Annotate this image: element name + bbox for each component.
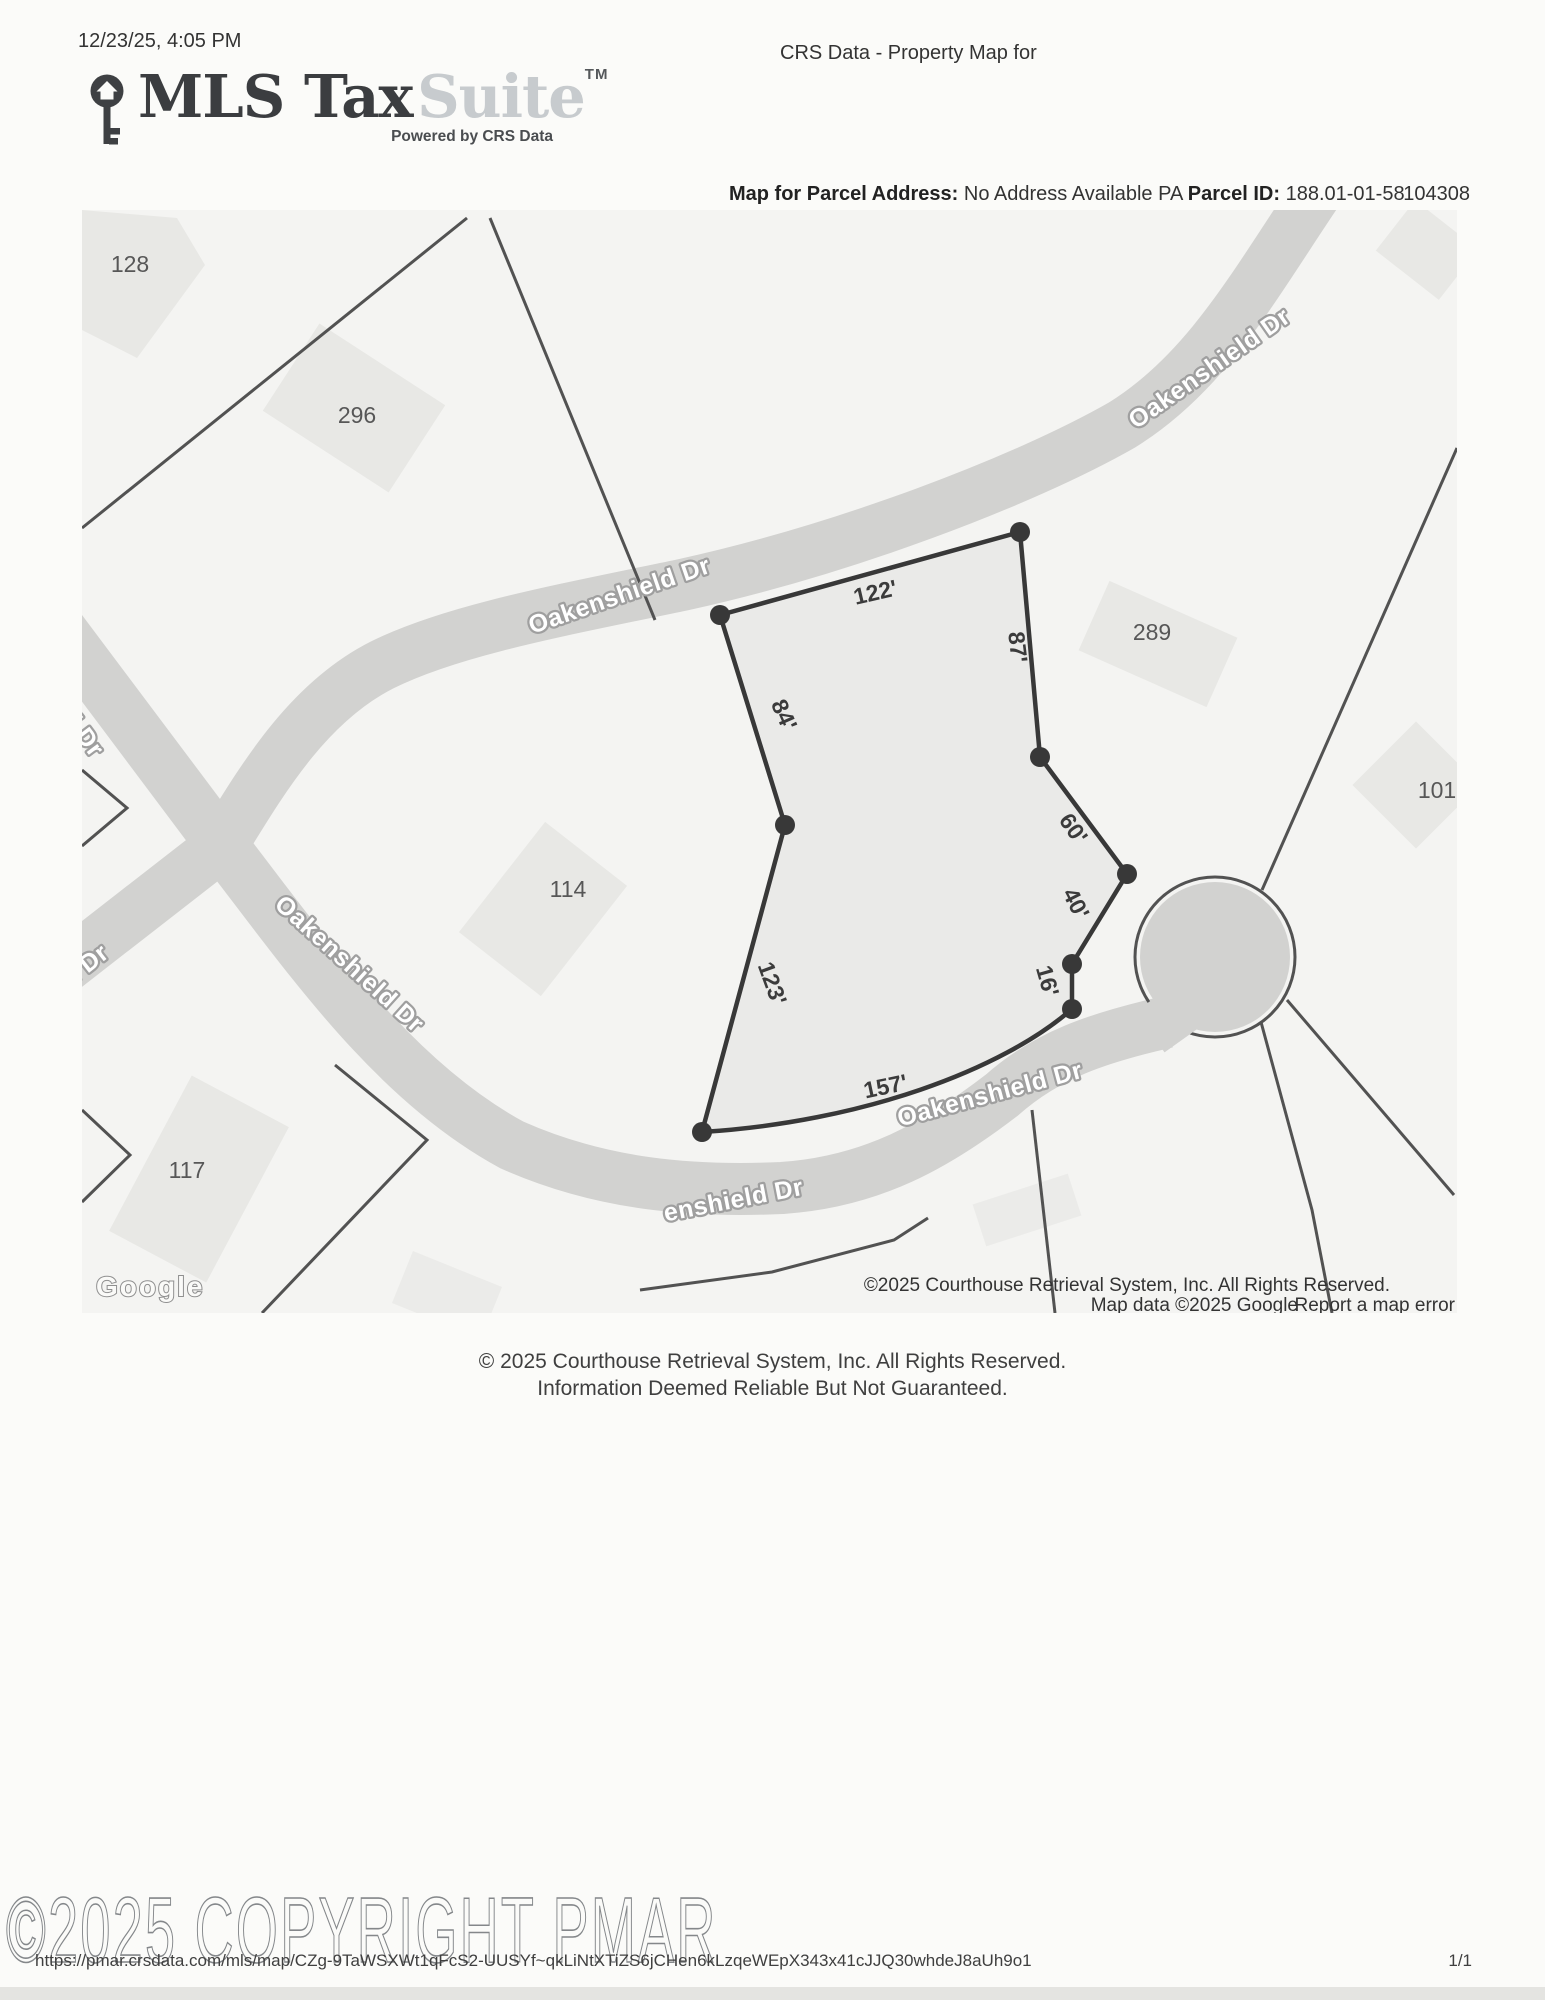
footer-url: https://pmar.crsdata.com/mls/map/CZg-9Ta… [35,1951,1032,1971]
disclaimer-block: © 2025 Courthouse Retrieval System, Inc.… [0,1348,1545,1402]
report-map-error-link: Report a map error [1294,1295,1455,1313]
parcel-label-296: 296 [338,402,376,428]
app-logo: MLS Tax SuiteTM [138,62,608,131]
logo-tagline: Powered by CRS Data [138,128,553,146]
property-map: 128 296 289 101 114 117 122' 87' 84' 60'… [82,210,1457,1313]
parcel-label-114: 114 [550,876,587,902]
logo-text-secondary: Suite [417,62,585,131]
google-logo: Google [96,1271,204,1302]
print-title: CRS Data - Property Map for [780,42,1037,65]
scan-edge [0,1987,1545,2000]
parcel-ref-number: 104308 [1403,183,1470,206]
map-attribution-crs: ©2025 Courthouse Retrieval System, Inc. … [864,1275,1390,1296]
print-timestamp: 12/23/25, 4:05 PM [78,30,241,53]
key-icon [84,70,130,150]
footer-page-number: 1/1 [1448,1951,1472,1971]
disclaimer-line2: Information Deemed Reliable But Not Guar… [0,1375,1545,1402]
logo-text-primary: MLS Tax [138,62,413,131]
parcel-id-value: 188.01-01-58 [1286,183,1405,205]
parcel-label-128: 128 [111,251,149,277]
parcel-address-label: Map for Parcel Address: [729,183,958,205]
map-attribution-google: Map data ©2025 Google [1091,1295,1298,1313]
cul-de-sac-road-junction [1150,1002,1192,1032]
disclaimer-line1: © 2025 Courthouse Retrieval System, Inc.… [0,1348,1545,1375]
parcel-address-value: No Address Available PA [964,183,1182,205]
parcel-label-117: 117 [169,1157,206,1183]
logo-trademark: TM [585,66,609,83]
parcel-label-289: 289 [1133,619,1171,645]
parcel-info-line: Map for Parcel Address: No Address Avail… [729,183,1405,206]
parcel-label-101: 101 [1418,777,1456,803]
dim-87: 87' [1003,630,1033,664]
parcel-id-label: Parcel ID: [1188,183,1280,205]
